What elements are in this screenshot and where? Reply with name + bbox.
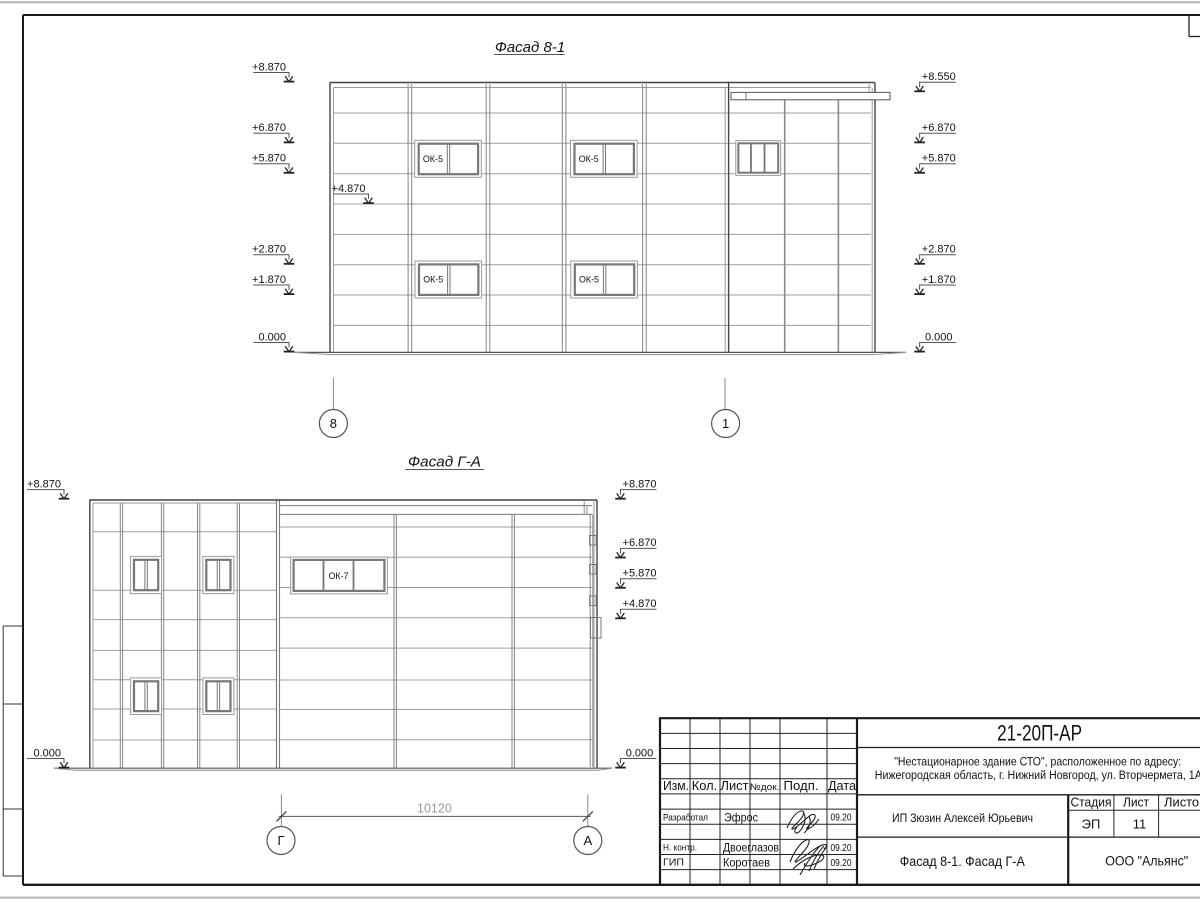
svg-text:+8.870: +8.870 bbox=[623, 478, 657, 490]
svg-text:ЭП: ЭП bbox=[1082, 817, 1101, 832]
svg-text:Стадия: Стадия bbox=[1071, 796, 1112, 810]
svg-text:Эфрос: Эфрос bbox=[724, 811, 758, 825]
svg-text:ОК-5: ОК-5 bbox=[579, 154, 599, 164]
svg-text:+6.870: +6.870 bbox=[252, 122, 286, 134]
svg-text:+4.870: +4.870 bbox=[623, 598, 657, 610]
svg-text:0.000: 0.000 bbox=[33, 747, 61, 759]
svg-text:Разработал: Разработал bbox=[663, 813, 708, 824]
svg-text:Фасад 8-1. Фасад Г-А: Фасад 8-1. Фасад Г-А bbox=[900, 853, 1026, 869]
svg-text:0.000: 0.000 bbox=[925, 331, 953, 343]
svg-text:+1.870: +1.870 bbox=[252, 274, 286, 286]
svg-text:Дата: Дата bbox=[828, 779, 856, 793]
svg-text:+5.870: +5.870 bbox=[623, 568, 657, 580]
svg-text:ГИП: ГИП bbox=[663, 858, 684, 869]
svg-text:ОК-7: ОК-7 bbox=[329, 571, 349, 581]
svg-text:ООО "Альянс": ООО "Альянс" bbox=[1105, 854, 1188, 869]
svg-text:11: 11 bbox=[1133, 817, 1147, 832]
svg-text:Нижегородская область, г. Нижн: Нижегородская область, г. Нижний Новгоро… bbox=[875, 768, 1200, 782]
svg-text:Г: Г bbox=[277, 833, 284, 848]
svg-text:А: А bbox=[583, 833, 592, 848]
svg-text:Фасад 8-1: Фасад 8-1 bbox=[495, 39, 565, 56]
svg-text:+2.870: +2.870 bbox=[922, 244, 956, 256]
svg-text:ИП Зюзин Алексей Юрьевич: ИП Зюзин Алексей Юрьевич bbox=[892, 811, 1033, 825]
svg-text:Листов: Листов bbox=[1164, 796, 1200, 810]
svg-text:09.20: 09.20 bbox=[831, 858, 852, 869]
svg-text:10120: 10120 bbox=[417, 801, 452, 815]
svg-text:8: 8 bbox=[330, 416, 337, 431]
svg-text:0.000: 0.000 bbox=[626, 747, 654, 759]
svg-text:ОК-5: ОК-5 bbox=[423, 154, 443, 164]
svg-text:Изм.: Изм. bbox=[663, 779, 689, 793]
svg-text:Подп.: Подп. bbox=[784, 779, 819, 793]
svg-text:Н. контр.: Н. контр. bbox=[663, 843, 697, 854]
svg-text:+6.870: +6.870 bbox=[922, 122, 956, 134]
svg-text:09.20: 09.20 bbox=[831, 813, 852, 824]
svg-text:+8.870: +8.870 bbox=[27, 478, 61, 490]
svg-text:09.20: 09.20 bbox=[831, 843, 852, 854]
svg-text:+8.870: +8.870 bbox=[252, 61, 286, 73]
svg-text:Кол.: Кол. bbox=[692, 779, 718, 793]
svg-text:Лист: Лист bbox=[1123, 796, 1149, 810]
svg-text:Фасад Г-А: Фасад Г-А bbox=[408, 454, 481, 471]
svg-text:"Нестационарное здание СТО", р: "Нестационарное здание СТО", расположенн… bbox=[894, 754, 1181, 768]
svg-text:Лист: Лист bbox=[721, 779, 749, 793]
svg-text:0.000: 0.000 bbox=[258, 331, 286, 343]
svg-text:Коротаев: Коротаев bbox=[723, 856, 770, 870]
svg-text:Двоеглазов: Двоеглазов bbox=[723, 843, 779, 855]
svg-text:+5.870: +5.870 bbox=[922, 153, 956, 165]
svg-text:+4.870: +4.870 bbox=[332, 183, 366, 195]
svg-text:21-20П-АР: 21-20П-АР bbox=[997, 721, 1082, 746]
svg-text:+6.870: +6.870 bbox=[623, 537, 657, 549]
svg-text:+2.870: +2.870 bbox=[252, 244, 286, 256]
svg-text:+8.550: +8.550 bbox=[922, 71, 956, 83]
svg-text:ОК-5: ОК-5 bbox=[423, 275, 443, 285]
svg-text:+5.870: +5.870 bbox=[252, 153, 286, 165]
svg-text:+1.870: +1.870 bbox=[922, 274, 956, 286]
svg-text:ОК-5: ОК-5 bbox=[579, 275, 599, 285]
svg-text:№док.: №док. bbox=[750, 782, 780, 793]
svg-text:1: 1 bbox=[722, 416, 729, 431]
